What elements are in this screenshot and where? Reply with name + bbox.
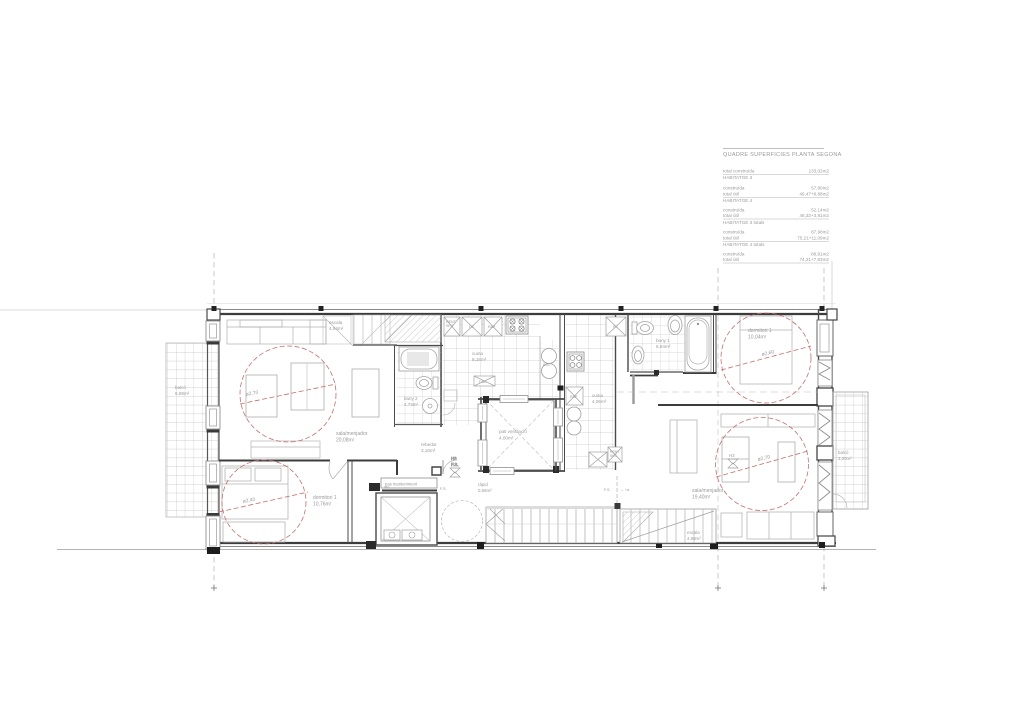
svg-text:HABITATGE 3 totals: HABITATGE 3 totals xyxy=(723,220,765,225)
svg-text:total útil: total útil xyxy=(723,213,739,218)
svg-text:10,76m²: 10,76m² xyxy=(313,502,332,508)
svg-text:133,02m2: 133,02m2 xyxy=(809,169,830,174)
svg-text:HABITATGE 4: HABITATGE 4 xyxy=(723,198,753,203)
svg-text:3,10m²: 3,10m² xyxy=(421,448,436,453)
svg-text:4,06m²: 4,06m² xyxy=(592,399,607,404)
svg-text:20,08m²: 20,08m² xyxy=(336,438,355,444)
svg-text:sala/menjador: sala/menjador xyxy=(692,488,724,494)
svg-text:3,00m²: 3,00m² xyxy=(838,456,852,461)
svg-text:10,04m²: 10,04m² xyxy=(748,335,767,341)
svg-text:5,94m²: 5,94m² xyxy=(656,344,671,349)
svg-text:QUADRE SUPERFICIES PLANTA SEGO: QUADRE SUPERFICIES PLANTA SEGONA xyxy=(723,152,842,158)
svg-text:dormitori 1: dormitori 1 xyxy=(748,328,772,334)
svg-text:4,98m²: 4,98m² xyxy=(687,536,701,541)
svg-text:sala/menjador: sala/menjador xyxy=(336,431,368,437)
svg-text:total útil: total útil xyxy=(723,236,739,241)
svg-text:6,88m²: 6,88m² xyxy=(175,391,190,396)
svg-text:DAC: DAC xyxy=(479,380,487,384)
svg-text:F.S.: F.S. xyxy=(604,488,611,492)
svg-text:87,98m2: 87,98m2 xyxy=(811,230,829,235)
svg-text:RAP: RAP xyxy=(488,325,496,329)
svg-text:balcó: balcó xyxy=(838,450,849,455)
svg-text:4,00m²: 4,00m² xyxy=(499,436,514,441)
svg-text:DC: DC xyxy=(469,325,475,329)
svg-text:F.S.: F.S. xyxy=(440,487,447,491)
svg-text:ø2,40: ø2,40 xyxy=(242,497,256,505)
svg-text:0,56m²: 0,56m² xyxy=(478,488,492,493)
svg-text:HABITATGE 3: HABITATGE 3 xyxy=(723,175,753,180)
svg-text:HABITATGE 4 totals: HABITATGE 4 totals xyxy=(723,242,765,247)
svg-text:cuina: cuina xyxy=(592,393,603,398)
svg-text:ràpid: ràpid xyxy=(478,482,488,487)
svg-text:construïda: construïda xyxy=(723,208,745,213)
svg-text:bany 2: bany 2 xyxy=(404,396,418,401)
svg-text:4,54m²: 4,54m² xyxy=(329,326,344,331)
svg-text:49,47+8,88m2: 49,47+8,88m2 xyxy=(799,192,829,197)
svg-text:bany 1: bany 1 xyxy=(656,338,670,343)
svg-text:cuina: cuina xyxy=(472,351,483,356)
svg-text:construïda: construïda xyxy=(723,230,745,235)
svg-text:pati ventilació: pati ventilació xyxy=(499,429,527,434)
svg-text:SEC: SEC xyxy=(446,324,454,328)
svg-text:construïda: construïda xyxy=(723,252,745,257)
svg-text:2,73m²: 2,73m² xyxy=(404,402,419,407)
svg-text:74,21+7,83m2: 74,21+7,83m2 xyxy=(799,257,829,262)
svg-text:88,91m2: 88,91m2 xyxy=(811,252,829,257)
svg-text:46,32+3,81m2: 46,32+3,81m2 xyxy=(799,213,829,218)
svg-text:construïda: construïda xyxy=(723,186,745,191)
svg-text:dormitori 1: dormitori 1 xyxy=(313,495,337,501)
svg-text:57,80m2: 57,80m2 xyxy=(811,186,829,191)
svg-text:FC: FC xyxy=(613,325,618,329)
svg-text:asc: asc xyxy=(384,485,390,489)
svg-text:RAP: RAP xyxy=(570,395,578,399)
svg-text:total útil: total útil xyxy=(723,257,739,262)
svg-text:→ +a: → +a xyxy=(620,488,630,492)
svg-text:F.S.: F.S. xyxy=(451,462,459,467)
svg-text:escala: escala xyxy=(329,320,343,325)
svg-text:DAC: DAC xyxy=(543,363,551,367)
svg-text:balcó: balcó xyxy=(175,385,186,390)
svg-text:total construïda: total construïda xyxy=(723,169,755,174)
svg-text:75,21+11,09m2: 75,21+11,09m2 xyxy=(797,236,829,241)
svg-text:pas manteniment: pas manteniment xyxy=(385,482,418,487)
svg-text:rebedor: rebedor xyxy=(421,442,437,447)
svg-text:ø2,60: ø2,60 xyxy=(761,349,775,358)
svg-text:total útil: total útil xyxy=(723,192,739,197)
svg-text:SEC: SEC xyxy=(610,454,618,458)
svg-text:52,14m2: 52,14m2 xyxy=(811,208,829,213)
svg-text:escala: escala xyxy=(687,530,700,535)
svg-text:8,16m²: 8,16m² xyxy=(472,357,487,362)
svg-text:19,40m²: 19,40m² xyxy=(692,495,711,501)
svg-text:H3: H3 xyxy=(729,453,735,458)
